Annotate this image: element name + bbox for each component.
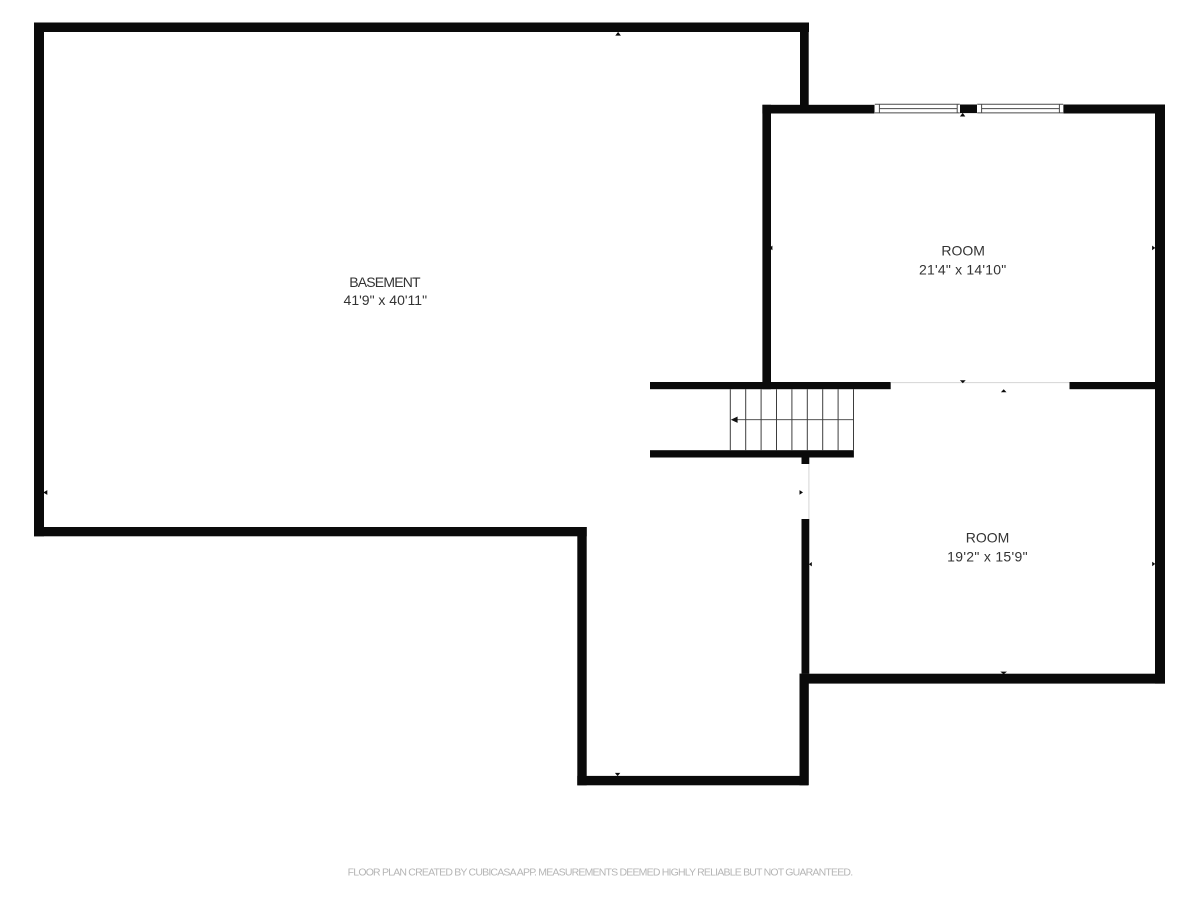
svg-text:21'4" x 14'10": 21'4" x 14'10" [919, 261, 1006, 277]
svg-text:41'9" x 40'11": 41'9" x 40'11" [344, 292, 428, 308]
svg-text:ROOM: ROOM [941, 243, 985, 259]
svg-text:ROOM: ROOM [966, 530, 1010, 546]
svg-text:FLOOR PLAN CREATED BY CUBICASA: FLOOR PLAN CREATED BY CUBICASA APP. MEAS… [348, 866, 853, 878]
svg-text:BASEMENT: BASEMENT [349, 274, 421, 290]
svg-text:19'2" x 15'9": 19'2" x 15'9" [947, 548, 1028, 564]
